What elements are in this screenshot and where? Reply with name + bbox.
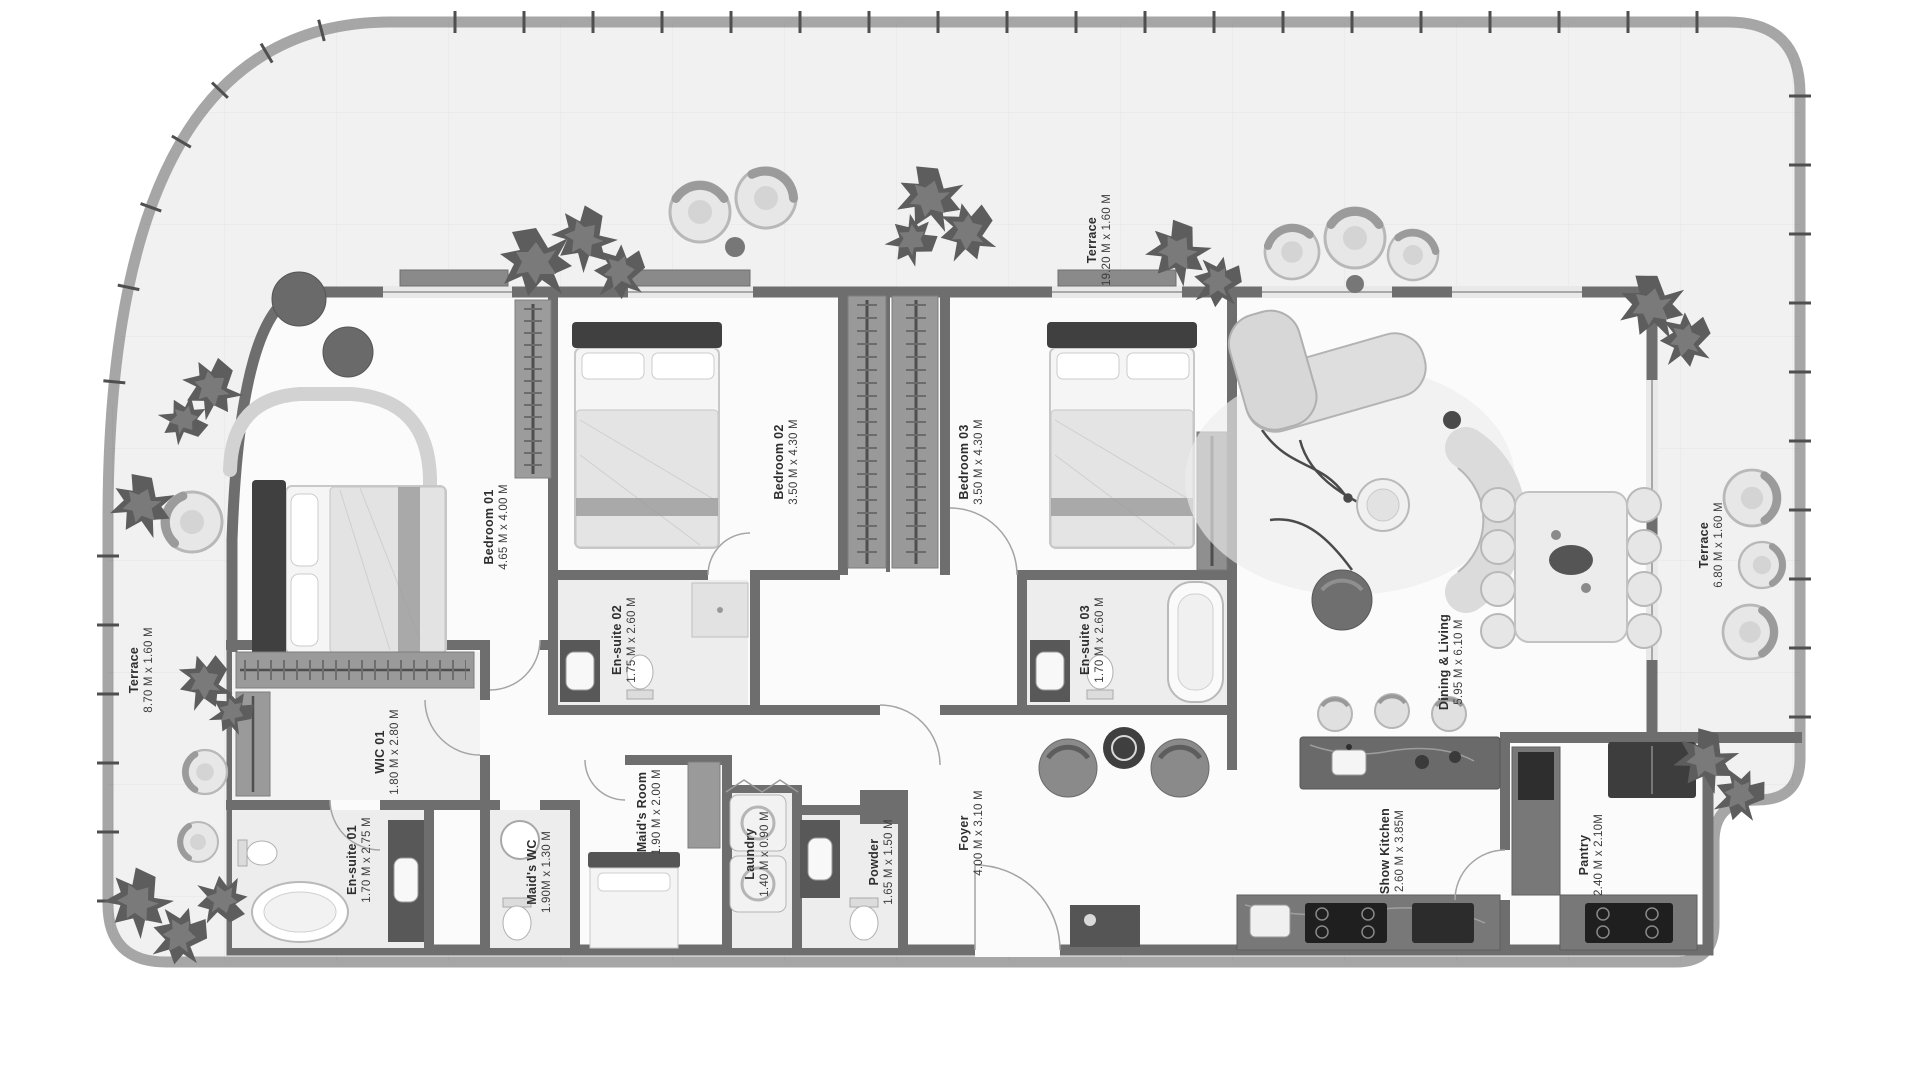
kitchen-island [1300,737,1500,789]
bed-double [252,480,446,660]
pantry-cooktop [1585,903,1673,943]
cooktop [1305,903,1387,943]
toilet [503,898,531,940]
bar-stools [1318,694,1466,731]
island-sink [1332,750,1366,775]
toilet [627,655,653,699]
oven [1412,903,1474,943]
side-table [1443,411,1461,429]
bedroom-02-furniture [572,322,722,548]
wine-cooler [1518,752,1554,800]
washer [730,795,786,851]
round-table [272,272,326,326]
bed-headboard [588,852,680,868]
wardrobe [515,300,551,478]
floor-plan-drawing [0,0,1920,1080]
entry-console [1070,905,1140,947]
bed-double [1047,322,1197,548]
bed-double [572,322,722,548]
toilet [850,898,878,940]
round-chair [323,327,373,377]
closet [688,762,720,848]
sink [501,821,539,859]
toilet [238,840,277,866]
toilet [1087,655,1113,699]
centerpiece [1549,545,1593,575]
wardrobe-block [848,296,938,568]
dryer [730,856,786,912]
kitchen-counter [1237,895,1500,950]
side-table [1103,727,1145,769]
floor-plan-canvas: Bedroom 01 4.65 M x 4.00 M Bedroom 02 3.… [0,0,1920,1080]
counter-sink [1250,905,1290,937]
